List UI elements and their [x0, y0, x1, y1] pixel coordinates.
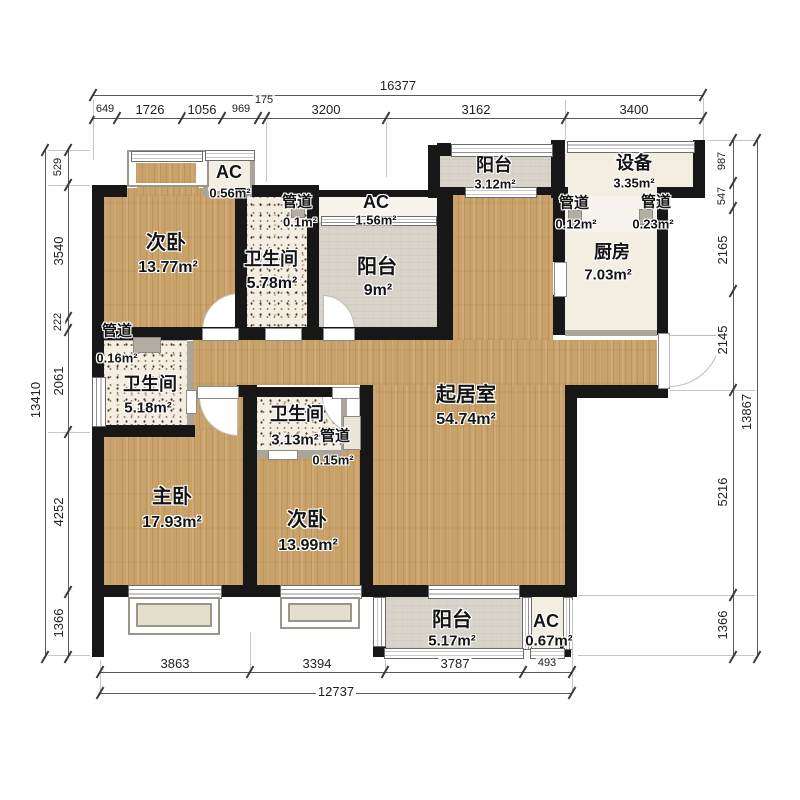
label-living-area: 54.74m²: [436, 412, 496, 428]
label-balcony517-area: 5.17m²: [428, 634, 476, 649]
dim-top-seg: 3162: [460, 103, 493, 117]
label-equip-name: 设备: [616, 154, 652, 172]
dim-top-seg: 649: [94, 104, 116, 116]
label-ac156-name: AC: [363, 193, 389, 211]
dim-right-seg: 2145: [716, 324, 730, 357]
dim-bottom-seg: 3394: [301, 657, 334, 671]
label-ac056-name: AC: [216, 163, 242, 181]
label-balcony312-name: 阳台: [476, 156, 512, 174]
dim-line-left-total: [45, 150, 46, 657]
dim-left-seg: 222: [53, 311, 65, 333]
dim-tick: [64, 650, 73, 663]
label-master-area: 17.93m²: [142, 515, 202, 531]
wall: [307, 188, 319, 340]
label-duct016-area: 0.16m²: [96, 352, 137, 365]
label-bath578-area: 5.78m²: [247, 276, 298, 292]
dim-line-right-seg: [733, 140, 734, 657]
dim-line-right-total: [757, 140, 758, 657]
dim-tick: [41, 650, 50, 663]
bay-inner-master: [136, 603, 212, 627]
wall: [437, 143, 451, 156]
dim-top-seg: 3200: [310, 103, 343, 117]
label-bath313-area: 3.13m²: [271, 433, 319, 448]
label-ac056-area: 0.56m²: [209, 187, 250, 200]
dim-bottom-seg: 3787: [439, 657, 472, 671]
window-sliding-living: [428, 585, 520, 599]
wall: [565, 385, 668, 398]
dim-line-top-total: [93, 95, 703, 96]
wall: [565, 385, 577, 597]
floorplan-canvas: 次卧 13.77m² AC 0.56m² 管道 0.1m² 卫生间 5.78m²…: [0, 0, 800, 800]
door-master: [197, 386, 239, 399]
label-balcony9-area: 9m²: [364, 283, 392, 299]
bay-floor: [136, 163, 196, 183]
label-bath313-name: 卫生间: [270, 405, 324, 423]
wall: [92, 425, 195, 437]
dim-left-total: 13410: [29, 380, 43, 420]
label-balcony9-name: 阳台: [357, 257, 397, 277]
dim-line-top-seg: [93, 118, 703, 119]
door-arc-entrance: [669, 335, 721, 387]
dim-bottom-total: 12737: [316, 685, 356, 699]
window-ac-056: [205, 150, 255, 161]
wall: [243, 385, 257, 597]
label-duct015-area: 0.15m²: [312, 454, 353, 467]
wall: [553, 295, 565, 335]
door-kitchen: [554, 262, 567, 297]
dim-top-seg: 1726: [134, 103, 167, 117]
label-duct012-name: 管道: [559, 196, 589, 211]
label-equip-area: 3.35m²: [613, 177, 654, 190]
label-bath518-name: 卫生间: [123, 375, 177, 393]
gray-wall: [187, 341, 193, 428]
dim-right-seg: 2165: [716, 234, 730, 267]
dim-top-total: 16377: [378, 79, 418, 93]
label-ac067-name: AC: [533, 612, 559, 630]
label-duct023-name: 管道: [641, 195, 671, 210]
dim-right-seg: 547: [717, 185, 729, 207]
dim-line-bottom-seg: [100, 672, 572, 673]
window-balcony-517-left: [373, 597, 386, 647]
label-duct01-area: 0.1m²: [283, 216, 317, 229]
label-living-name: 起居室: [436, 385, 496, 405]
label-duct015-name: 管道: [320, 429, 350, 444]
label-ac067-area: 0.67m²: [525, 634, 573, 649]
label-bedroom2-bot-name: 次卧: [287, 510, 327, 530]
dim-left-seg: 1366: [52, 607, 66, 640]
window-bay-top: [131, 151, 203, 162]
dim-left-seg: 2061: [52, 365, 66, 398]
dim-top-seg: 175: [253, 95, 275, 107]
door-bath-313: [268, 450, 298, 460]
door-bath-518: [186, 390, 197, 414]
label-duct01-name: 管道: [282, 195, 312, 210]
ext-line: [266, 122, 267, 182]
ext-line: [386, 122, 387, 177]
ext-line: [578, 655, 755, 656]
wall: [360, 385, 373, 597]
dim-top-seg: 1056: [186, 103, 219, 117]
label-kitchen-area: 7.03m²: [584, 268, 632, 283]
door-bedroom2-bot: [332, 387, 360, 399]
ext-line: [578, 595, 755, 596]
label-duct016-name: 管道: [102, 324, 132, 339]
dim-right-total: 13867: [740, 392, 754, 432]
floor-hallway: [193, 340, 657, 385]
dim-bottom-seg: 3863: [159, 657, 192, 671]
ext-line: [565, 100, 566, 140]
dim-right-seg: 1366: [716, 609, 730, 642]
dim-right-seg: 987: [717, 150, 729, 172]
label-kitchen-name: 厨房: [594, 243, 630, 261]
door-bath-578: [265, 328, 302, 341]
label-master-name: 主卧: [152, 487, 192, 507]
label-bath518-area: 5.18m²: [124, 401, 172, 416]
floor-living-upper: [440, 195, 553, 340]
label-bedroom2-top-name: 次卧: [146, 233, 186, 253]
label-balcony517-name: 阳台: [432, 610, 472, 630]
dim-tick: [729, 650, 738, 663]
label-bedroom2-bot-area: 13.99m²: [278, 538, 338, 554]
door-bedroom2-top: [202, 328, 239, 341]
window-equip: [567, 141, 695, 153]
bay-inner-bedroom2: [288, 603, 352, 622]
dim-top-seg: 969: [230, 104, 252, 116]
dim-line-left-seg: [68, 150, 69, 657]
dim-tick: [753, 650, 762, 663]
window-left-bath: [92, 377, 106, 427]
label-ac156-area: 1.56m²: [355, 214, 396, 227]
dim-left-seg: 3540: [52, 235, 66, 268]
dim-top-seg: 3400: [618, 103, 651, 117]
gray-wall: [565, 330, 657, 336]
label-bedroom2-top-area: 13.77m²: [138, 260, 198, 276]
dim-right-seg: 5216: [716, 476, 730, 509]
dim-left-seg: 4252: [52, 496, 66, 529]
label-bath578-name: 卫生间: [244, 250, 298, 268]
ext-line: [670, 390, 755, 391]
label-duct012-area: 0.12m²: [555, 218, 596, 231]
door-balcony-9: [323, 328, 355, 341]
wall: [437, 187, 453, 340]
label-balcony312-area: 3.12m²: [474, 178, 515, 191]
dim-left-seg: 529: [53, 156, 65, 178]
label-duct023-area: 0.23m²: [632, 218, 673, 231]
dim-bottom-seg: 493: [536, 658, 558, 670]
